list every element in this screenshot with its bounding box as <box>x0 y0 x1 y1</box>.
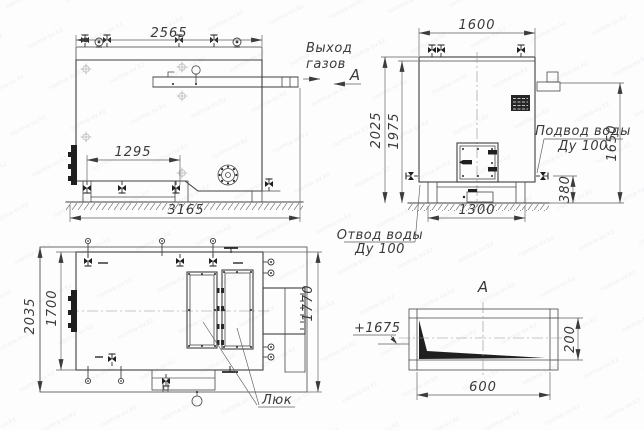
dim-valve-spacing: 1295 <box>114 145 151 160</box>
dim-depth-total: 2035 <box>23 297 38 334</box>
dim-height-body: 1975 <box>387 112 402 149</box>
dim-section-width: 600 <box>469 380 497 395</box>
hatch-label: Люк <box>261 393 292 408</box>
level-mark: +1675 <box>354 321 400 336</box>
boiler-technical-drawing: norma-sv.kz norma-sv.kz <box>0 0 644 430</box>
gas-outlet-label-2: газов <box>306 57 346 72</box>
dim-height-total: 2025 <box>369 111 384 148</box>
water-outlet-label-2: Ду 100 <box>354 242 405 257</box>
nameplate <box>511 95 530 111</box>
dim-depth-body: 1700 <box>45 289 60 326</box>
section-title: А <box>477 278 488 296</box>
dim-depth-right: 1770 <box>301 284 316 321</box>
dim-length-total: 3165 <box>167 203 204 218</box>
water-inlet-label-1: Подвод воды <box>535 124 631 139</box>
water-inlet-label-2: Ду 100 <box>557 139 608 154</box>
dim-width-top: 1600 <box>458 18 495 33</box>
section-mark-letter: А <box>349 66 360 84</box>
dim-support-spacing: 1300 <box>458 203 495 218</box>
dim-section-height: 200 <box>563 325 578 353</box>
dim-outlet-height: 380 <box>558 175 573 203</box>
top-furnace-door <box>68 290 77 332</box>
dim-length-top: 2565 <box>150 26 187 41</box>
water-outlet-label-1: Отвод воды <box>337 228 423 243</box>
drawing-canvas: norma-sv.kz norma-sv.kz <box>0 0 644 430</box>
gas-outlet-label-1: Выход <box>306 41 352 56</box>
